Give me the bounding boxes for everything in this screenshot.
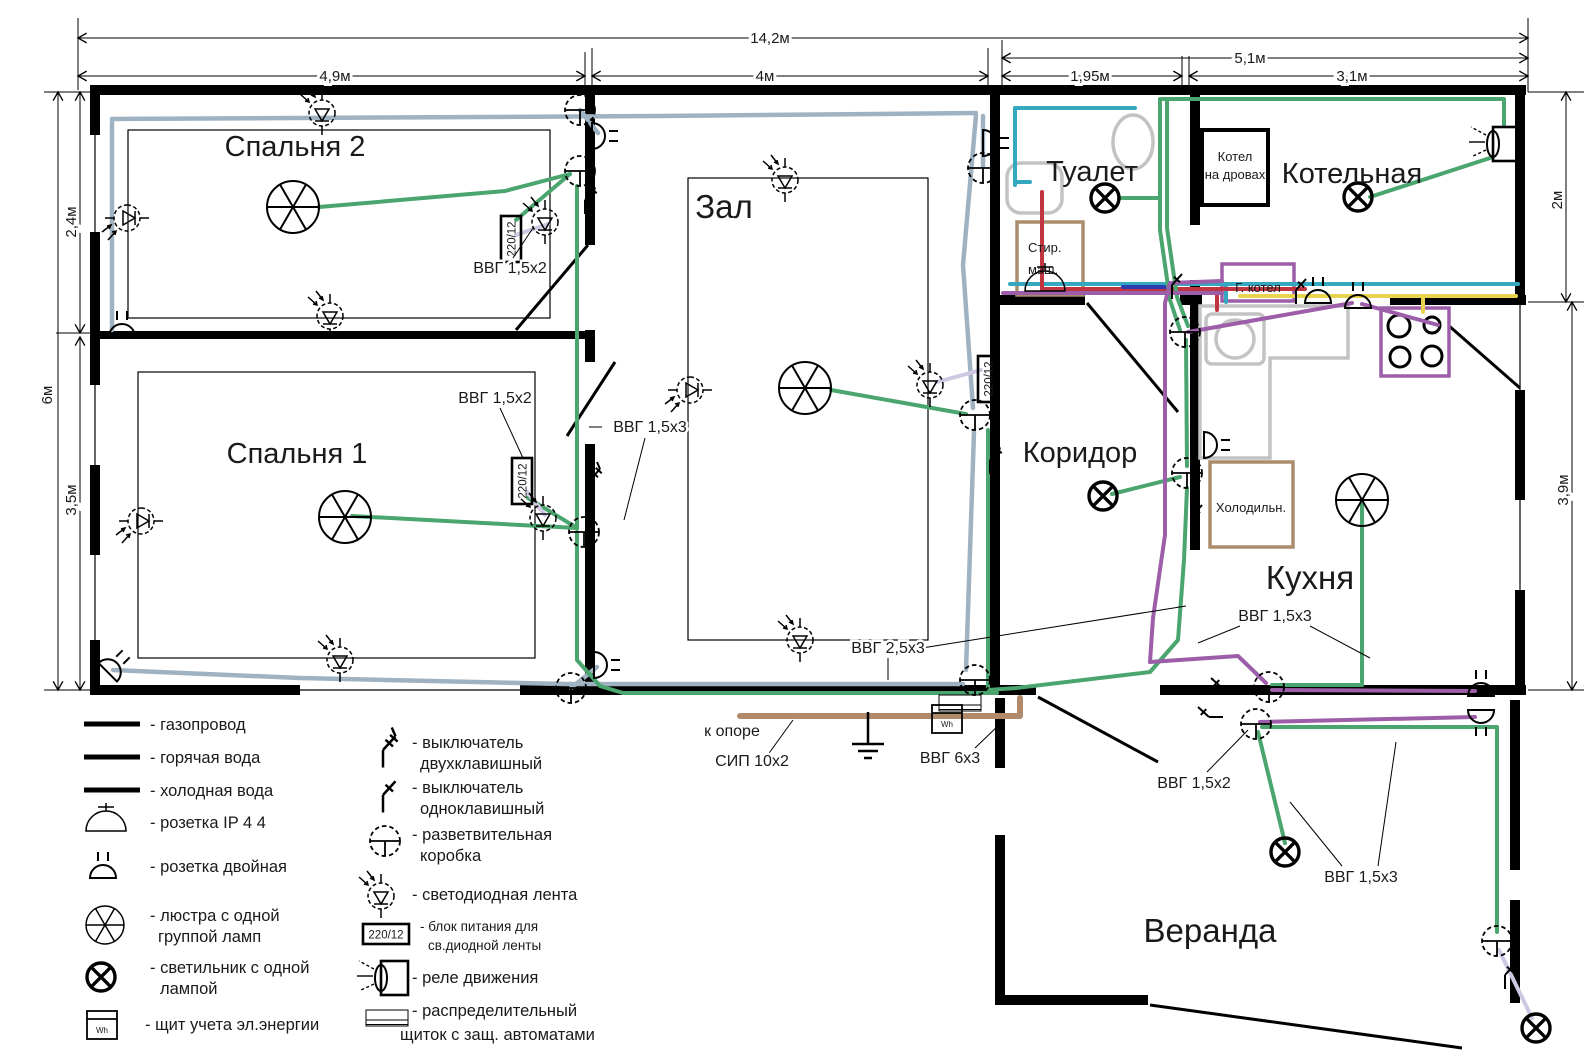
legend-ip44: - розетка IP 4 4	[150, 814, 266, 832]
socket-wire	[112, 113, 976, 119]
room-label-hall: Зал	[695, 188, 753, 225]
room-label-corridor: Коридор	[1023, 437, 1138, 469]
legend: - газопровод - горячая вода - холодная в…	[84, 716, 595, 1044]
cable-label-vvg152: ВВГ 1,5х2	[1157, 775, 1231, 792]
led-psu-icon	[501, 216, 521, 262]
lighting-wire	[831, 390, 966, 414]
distribution-panel-icon	[366, 1010, 408, 1026]
legend-junction: - разветвительная	[412, 826, 552, 844]
socket-wire	[113, 670, 963, 684]
room-label-boiler: Котельная	[1282, 158, 1422, 190]
led-strip-icon	[523, 197, 558, 244]
legend-cold-water: - холодная вода	[150, 782, 274, 800]
fridge-label: Холодильн.	[1216, 500, 1286, 515]
dim-toilet-width: 1,95м	[1070, 68, 1110, 85]
switch-one-gang-icon	[383, 781, 396, 812]
led-strip-icon	[300, 88, 335, 135]
led-psu-icon	[363, 924, 409, 944]
legend-lamp: лампой	[160, 980, 217, 998]
washer-label: Стир.	[1028, 240, 1061, 255]
led-strip-icon	[359, 871, 394, 918]
chandelier-icon	[86, 906, 124, 944]
double-socket-icon	[1305, 277, 1331, 303]
lighting-wire	[1112, 477, 1180, 494]
door-veranda	[1150, 1005, 1462, 1048]
lighting-wire	[1262, 727, 1497, 932]
service-equipment	[852, 695, 981, 758]
sip-cable	[740, 698, 1020, 716]
dim-boiler-width: 3,1м	[1336, 68, 1367, 85]
legend-double-socket: - розетка двойная	[150, 858, 287, 876]
dim-left-height: 6м	[39, 386, 56, 405]
cable-label-vvg153: ВВГ 1,5х3	[613, 419, 687, 436]
chandelier-icon	[779, 362, 831, 414]
legend-switch1: - выключатель	[412, 779, 523, 797]
room-label-toilet: Туалет	[1046, 156, 1138, 188]
legend-psu: - блок питания для	[420, 919, 538, 934]
dim-bedroom2-width: 4,9м	[319, 68, 350, 85]
dim-bedroom1-height: 3,5м	[63, 484, 80, 515]
legend-panel: - распределительный	[412, 1002, 577, 1020]
double-socket-icon	[1204, 432, 1230, 458]
kitchen-socket-wire	[1150, 656, 1266, 683]
double-socket-icon	[90, 852, 116, 878]
legend-panel: щиток с защ. автоматами	[400, 1026, 595, 1044]
lighting-wire	[1186, 340, 1187, 466]
led-psu-icon	[978, 356, 998, 402]
lighting-wire	[1162, 99, 1504, 126]
room-label-bedroom2: Спальня 2	[225, 131, 366, 163]
socket-wire	[963, 115, 976, 408]
lamp-icon	[1091, 184, 1119, 212]
lighting-wire	[577, 532, 997, 693]
led-feed-wire	[937, 370, 981, 382]
double-socket-icon	[1468, 710, 1494, 736]
lighting-wire	[319, 174, 570, 207]
legend-meter: - щит учета эл.энергии	[145, 1016, 319, 1034]
cable-label-vvg63: ВВГ 6х3	[920, 750, 980, 767]
floor-plan-svg: Wh 220/12	[0, 0, 1589, 1061]
lamp-icon	[1522, 1014, 1550, 1042]
kitchen-socket-wire	[1260, 717, 1475, 722]
legend-switch1: одноклавишный	[420, 800, 544, 818]
kitchen-counter	[1200, 306, 1348, 458]
chandelier-icon	[267, 181, 319, 233]
junction-box-icon	[1241, 709, 1271, 739]
dim-boiler-height: 2м	[1549, 191, 1566, 210]
legend-switch2: - выключатель	[412, 734, 523, 752]
lamp-icon	[1089, 482, 1117, 510]
cable-label-vvg153: ВВГ 1,5х3	[1324, 869, 1398, 886]
legend-lamp: - светильник с одной	[150, 959, 309, 977]
led-strip-icon	[102, 205, 149, 240]
electrical-floor-plan: Wh 220/12	[0, 0, 1589, 1061]
legend-psu: св.диодной ленты	[428, 938, 541, 953]
lighting-wire	[1258, 732, 1285, 843]
wood-boiler-label: на дровах	[1205, 167, 1266, 182]
washer-label: маш.	[1028, 262, 1058, 277]
room-label-kitchen: Кухня	[1266, 559, 1354, 596]
gas-boiler-label: Г. котел	[1235, 280, 1281, 295]
door-kitchen-right	[1440, 318, 1520, 388]
cable-label-vvg253: ВВГ 2,5х3	[851, 640, 925, 657]
led-strip-icon	[778, 615, 813, 662]
double-socket-icon	[99, 645, 136, 682]
legend-relay: - реле движения	[412, 969, 538, 987]
motion-relay-icon	[357, 961, 408, 995]
socket-wire	[966, 432, 974, 670]
motion-relay-icon	[1469, 127, 1520, 161]
legend-chandelier: группой ламп	[158, 928, 261, 946]
distribution-panel-icon	[939, 695, 981, 711]
to-pole-label: к опоре	[704, 723, 760, 740]
energy-meter-icon	[87, 1011, 117, 1039]
led-strip-icon	[521, 493, 556, 540]
door-corridor-entry	[1038, 697, 1158, 762]
walls	[90, 86, 1526, 1003]
door-bedroom1	[567, 362, 615, 436]
ip44-socket-icon	[86, 803, 126, 831]
legend-gas: - газопровод	[150, 716, 246, 734]
legend-chandelier: - люстра с одной	[150, 907, 280, 925]
chandelier-icon	[319, 491, 371, 543]
switch-one-gang-icon	[1198, 707, 1223, 717]
doors	[516, 245, 1520, 1048]
junction-box-icon	[370, 826, 400, 856]
dim-total-width: 14,2м	[750, 30, 790, 47]
room-label-veranda: Веранда	[1144, 912, 1278, 949]
kitchen-socket-wire	[1272, 690, 1475, 691]
legend-switch2: двухклавишный	[420, 755, 542, 773]
switch-two-gang-icon	[383, 728, 398, 768]
dim-kitchen-height: 3,9м	[1555, 474, 1572, 505]
dim-hall-width: 4м	[756, 68, 775, 85]
legend-led: - светодиодная лента	[412, 886, 578, 904]
wood-boiler-label: Котел	[1218, 149, 1253, 164]
room-label-bedroom1: Спальня 1	[227, 438, 368, 470]
cable-label-vvg153: ВВГ 1,5х3	[1238, 608, 1312, 625]
cable-label-vvg152: ВВГ 1,5х2	[473, 260, 547, 277]
legend-hot-water: - горячая вода	[150, 749, 261, 767]
led-strip-icon	[116, 508, 163, 543]
dim-right-width: 5,1м	[1234, 50, 1265, 67]
legend-junction: коробка	[420, 847, 482, 865]
lamp-icon	[87, 963, 115, 991]
cable-label-vvg152: ВВГ 1,5х2	[458, 390, 532, 407]
led-strip-icon	[308, 291, 343, 338]
cable-label-sip: СИП 10х2	[715, 753, 789, 770]
dim-bedroom2-height: 2,4м	[63, 206, 80, 237]
led-psu-icon	[512, 458, 532, 504]
